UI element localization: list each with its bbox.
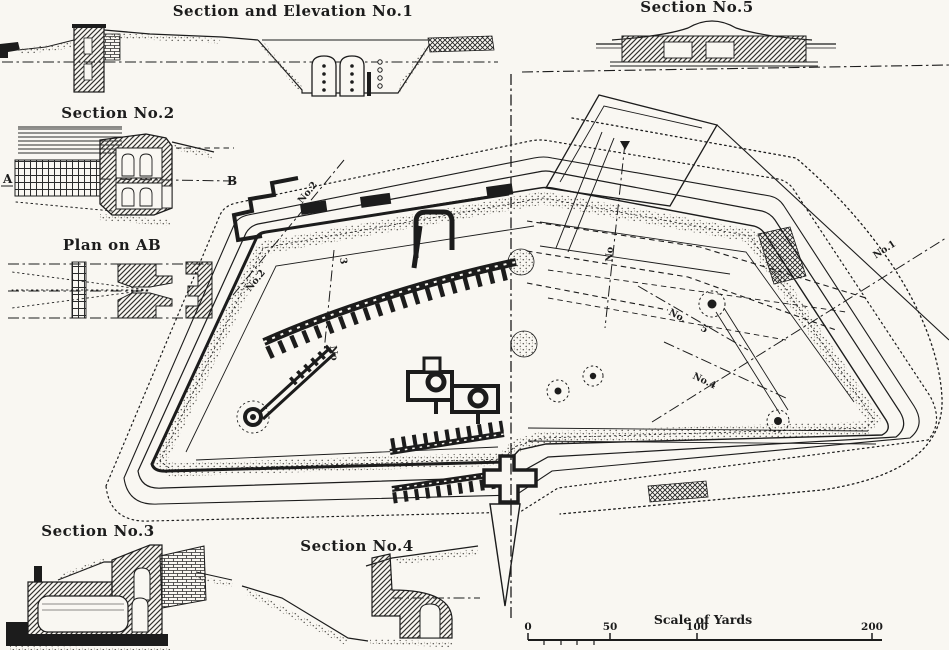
tower-loophole-lower <box>84 64 92 80</box>
plan-label-no3-digit: 3 <box>337 257 349 265</box>
bombproof-chamber-right <box>706 42 734 58</box>
label-a: A <box>2 172 13 186</box>
casemate-floor <box>116 178 162 183</box>
vent-chimney <box>34 566 42 582</box>
plan-label-no3-prefix: No <box>327 345 340 361</box>
casemate-room <box>38 596 128 632</box>
plan-label-no5-vert: No <box>604 247 616 263</box>
wall-window-arch <box>134 568 150 600</box>
gallery-arch <box>420 604 440 638</box>
scale-tick-200: 200 <box>861 621 883 633</box>
bombproof-chamber-left <box>664 42 692 58</box>
ditch-post <box>367 72 371 96</box>
counterscarp-wall-band <box>428 36 494 52</box>
scale-tick-50: 50 <box>603 621 618 633</box>
palisade-grid <box>15 160 100 196</box>
section5-title: Section No.5 <box>640 0 753 16</box>
divide-traverse-circle-lower <box>511 331 537 357</box>
section1-title: Section and Elevation No.1 <box>173 2 414 20</box>
plate-svg: Section and Elevation No.1 Section No.2 <box>0 0 949 650</box>
label-b: B <box>227 174 237 188</box>
tower-loophole-upper <box>84 38 92 54</box>
scale-tick-100: 100 <box>686 621 708 633</box>
tower-cap <box>72 24 106 28</box>
palisade-plan-band <box>72 262 86 318</box>
scale-tick-0: 0 <box>524 621 531 633</box>
stair-well <box>428 374 444 390</box>
fortification-plate: Section and Elevation No.1 Section No.2 <box>0 0 949 650</box>
section4-title: Section No.4 <box>300 537 413 555</box>
door-arch <box>132 598 148 632</box>
section3-title: Section No.3 <box>41 522 154 540</box>
stair-well <box>470 390 486 406</box>
rear-wall-plan <box>186 262 212 318</box>
section2-title: Section No.2 <box>61 104 174 122</box>
rubble-revetment <box>160 546 206 608</box>
keep-tower <box>74 26 104 92</box>
planab-title: Plan on AB <box>63 236 161 254</box>
rear-door <box>162 186 172 208</box>
